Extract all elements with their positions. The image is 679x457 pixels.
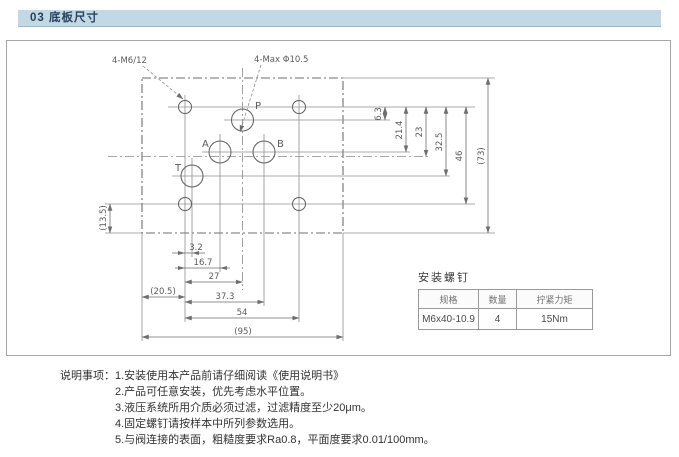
dim-46: 46 <box>455 151 465 162</box>
dim-21-4: 21.4 <box>395 121 405 140</box>
notes-list: 1.安装使用本产品前请仔细阅读《使用说明书》 2.产品可任意安装，优先考虑水平位… <box>115 368 435 448</box>
port-t-label: T <box>174 163 182 174</box>
dim-73: (73) <box>477 147 487 164</box>
dim-27: 27 <box>209 272 220 282</box>
dim-3-2: 3.2 <box>189 243 203 253</box>
dim-6-3: 6.3 <box>374 107 384 121</box>
port-b-label: B <box>277 139 284 150</box>
cell-spec: M6x40-10.9 <box>419 309 479 330</box>
note-item-2: 2.产品可任意安装，优先考虑水平位置。 <box>115 384 435 400</box>
note-item-1: 1.安装使用本产品前请仔细阅读《使用说明书》 <box>115 368 435 384</box>
mounting-screws-table: 规格 数量 拧紧力矩 M6x40-10.9 4 15Nm <box>418 289 593 330</box>
col-header-torque: 拧紧力矩 <box>517 290 593 309</box>
table-row: M6x40-10.9 4 15Nm <box>419 309 593 330</box>
note-item-5: 5.与阀连接的表面，粗糙度要求Ra0.8，平面度要求0.01/100mm。 <box>115 432 435 448</box>
cell-torque: 15Nm <box>517 309 593 330</box>
callout-max-ports: 4-Max Φ10.5 <box>254 55 308 65</box>
note-item-4: 4.固定螺钉请按样本中所列参数选用。 <box>115 416 435 432</box>
mounting-screws-block: 安装螺钉 规格 数量 拧紧力矩 M6x40-10.9 4 15Nm <box>418 269 598 330</box>
datasheet-page: 03 底板尺寸 <box>0 0 679 457</box>
dim-20-5: (20.5) <box>150 287 176 297</box>
dim-32-5: 32.5 <box>435 133 445 152</box>
dim-37-3: 37.3 <box>216 292 235 302</box>
dim-13-5: (13.5) <box>99 205 109 231</box>
dim-95: (95) <box>234 327 251 337</box>
mounting-screws-title: 安装螺钉 <box>418 269 598 285</box>
col-header-qty: 数量 <box>479 290 517 309</box>
port-p-label: P <box>255 101 261 112</box>
dim-23: 23 <box>415 127 425 138</box>
port-a-label: A <box>202 139 209 150</box>
notes-label: 说明事项： <box>60 368 115 448</box>
centerlines <box>108 68 430 290</box>
table-header-row: 规格 数量 拧紧力矩 <box>419 290 593 309</box>
cell-qty: 4 <box>479 309 517 330</box>
dim-54: 54 <box>237 308 248 318</box>
col-header-spec: 规格 <box>419 290 479 309</box>
callout-thread-holes: 4-M6/12 <box>112 56 147 66</box>
notes-block: 说明事项： 1.安装使用本产品前请仔细阅读《使用说明书》 2.产品可任意安装，优… <box>60 368 435 448</box>
dim-16-7: 16.7 <box>194 258 213 268</box>
note-item-3: 3.液压系统所用介质必须过滤，过滤精度至少20μm。 <box>115 400 435 416</box>
